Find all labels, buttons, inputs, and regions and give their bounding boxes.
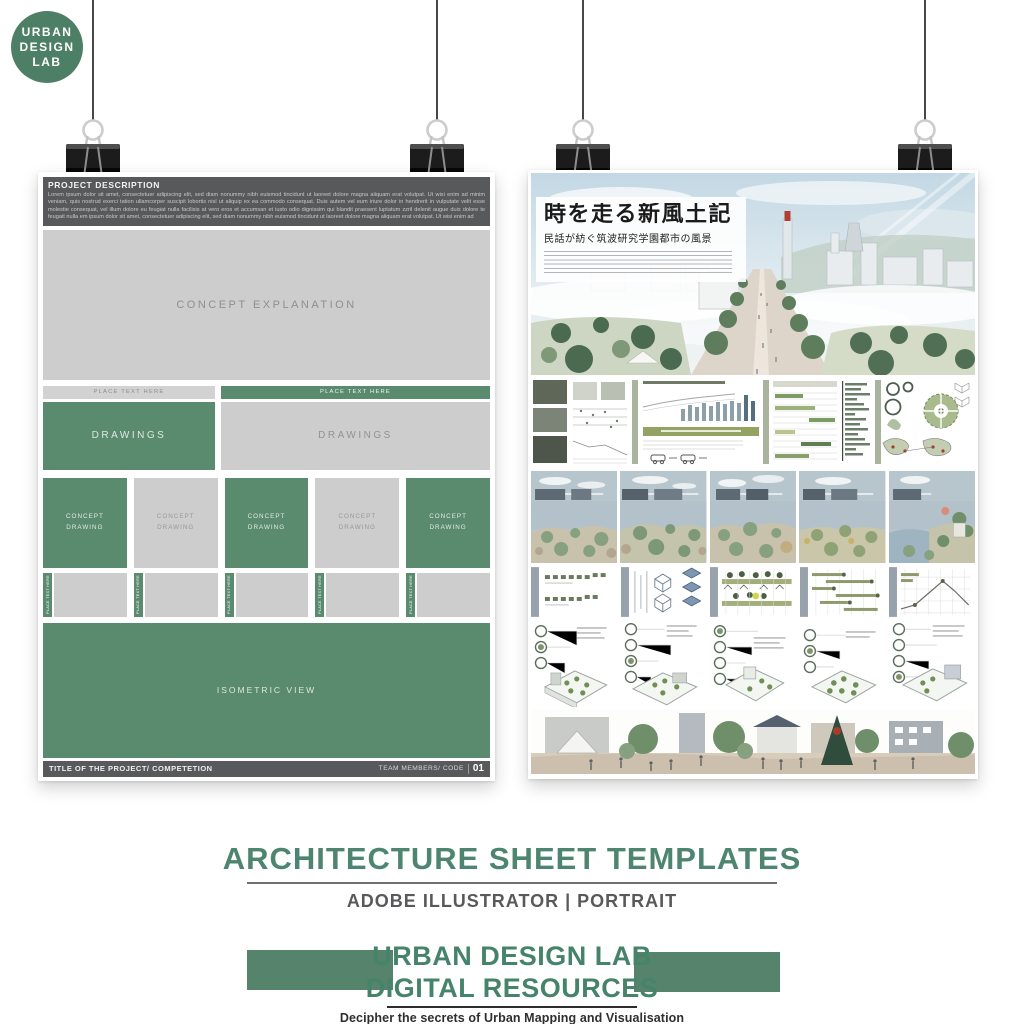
axon-cluster (889, 621, 975, 707)
hanging-string (92, 0, 94, 121)
logo-line-2: DESIGN (19, 40, 74, 55)
concept-explanation-box: CONCEPT EXPLANATION (43, 230, 490, 380)
strip-image-placeholder (326, 573, 399, 617)
place-text-strip: PLACE TEXT HERE (315, 573, 324, 617)
place-text-strips-row: PLACE TEXT HERE PLACE TEXT HERE PLACE TE… (43, 573, 490, 617)
example-poster: 時を走る新風土記 民話が紡ぐ筑波研究学園都市の風景 (528, 170, 978, 779)
analysis-diagrams-band (531, 377, 975, 469)
timeline-panel (710, 565, 796, 619)
landscape-panel (889, 471, 975, 563)
place-text-bar-green: PLACE TEXT HERE (221, 386, 490, 399)
concept-explanation-label: CONCEPT EXPLANATION (176, 299, 356, 311)
axon-cluster (621, 621, 707, 707)
axonometric-diagrams-row (531, 621, 975, 707)
brand-line-2: DIGITAL RESOURCES (247, 973, 777, 1005)
isometric-view-box: ISOMETRIC VIEW (43, 623, 490, 758)
concept-drawing-box: CONCEPT DRAWING (225, 478, 309, 568)
poster-title-block: 時を走る新風土記 民話が紡ぐ筑波研究学園都市の風景 (536, 197, 746, 282)
place-text-strip: PLACE TEXT HERE (406, 573, 415, 617)
axon-cluster (531, 621, 617, 707)
hanging-string (924, 0, 926, 121)
strip-unit: PLACE TEXT HERE (225, 573, 309, 617)
project-description-body: Lorem ipsum dolor sit amet, consectetuer… (48, 192, 485, 222)
binder-clip-icon (61, 117, 125, 179)
strip-unit: PLACE TEXT HERE (43, 573, 127, 617)
main-heading: ARCHITECTURE SHEET TEMPLATES (0, 841, 1024, 877)
drawings-box-gray: DRAWINGS (221, 402, 490, 470)
concept-drawing-box: CONCEPT DRAWING (315, 478, 399, 568)
footer-separator (468, 764, 469, 774)
axon-cluster (710, 621, 796, 707)
concept-drawing-box: CONCEPT DRAWING (134, 478, 218, 568)
footer-project-title: TITLE OF THE PROJECT/ COMPETETION (49, 764, 213, 773)
strip-image-placeholder (236, 573, 309, 617)
footer-sheet-number: 01 (473, 763, 484, 774)
timeline-panel (889, 565, 975, 619)
drawings-box-green: DRAWINGS (43, 402, 215, 470)
strip-unit: PLACE TEXT HERE (134, 573, 218, 617)
logo-line-1: URBAN (22, 25, 73, 40)
concept-drawing-row: CONCEPT DRAWING CONCEPT DRAWING CONCEPT … (43, 478, 490, 568)
caption-block: ARCHITECTURE SHEET TEMPLATES ADOBE ILLUS… (0, 841, 1024, 912)
landscape-panel (710, 471, 796, 563)
sub-heading: ADOBE ILLUSTRATOR | PORTRAIT (0, 891, 1024, 912)
binder-clip-icon (405, 117, 469, 179)
drawings-row: DRAWINGS DRAWINGS (43, 402, 490, 470)
concept-drawing-box: CONCEPT DRAWING (406, 478, 490, 568)
isometric-view-label: ISOMETRIC VIEW (217, 685, 316, 695)
landscape-panel (531, 471, 617, 563)
place-text-strip: PLACE TEXT HERE (134, 573, 143, 617)
strip-unit: PLACE TEXT HERE (315, 573, 399, 617)
hero-illustration: 時を走る新風土記 民話が紡ぐ筑波研究学園都市の風景 (531, 173, 975, 375)
landscape-panels-row (531, 471, 975, 563)
footer-team-label: TEAM MEMBERS/ CODE (379, 765, 464, 772)
timeline-panel (621, 565, 707, 619)
landscape-panel (799, 471, 885, 563)
project-description-header: PROJECT DESCRIPTION Lorem ipsum dolor si… (43, 177, 490, 226)
place-text-strip: PLACE TEXT HERE (225, 573, 234, 617)
poster-title: 時を走る新風土記 (544, 203, 738, 226)
brand-block: URBAN DESIGN LAB DIGITAL RESOURCES Decip… (247, 941, 777, 1024)
timeline-panel (531, 565, 617, 619)
intro-paragraph-placeholder (544, 251, 732, 275)
template-footer: TITLE OF THE PROJECT/ COMPETETION TEAM M… (43, 761, 490, 777)
urban-design-lab-logo: URBAN DESIGN LAB (11, 11, 83, 83)
place-text-strip: PLACE TEXT HERE (43, 573, 52, 617)
strip-image-placeholder (145, 573, 218, 617)
strip-image-placeholder (417, 573, 490, 617)
brand-tagline: Decipher the secrets of Urban Mapping an… (247, 1011, 777, 1024)
axon-cluster (800, 621, 886, 707)
template-poster: PROJECT DESCRIPTION Lorem ipsum dolor si… (38, 172, 495, 781)
heading-divider (247, 882, 777, 884)
street-illustration (531, 709, 975, 774)
place-text-bars-row: PLACE TEXT HERE PLACE TEXT HERE (43, 386, 490, 399)
strip-image-placeholder (54, 573, 127, 617)
strip-unit: PLACE TEXT HERE (406, 573, 490, 617)
timeline-diagrams-row (531, 565, 975, 619)
footer-right: TEAM MEMBERS/ CODE 01 (379, 763, 484, 774)
concept-drawing-box: CONCEPT DRAWING (43, 478, 127, 568)
project-description-title: PROJECT DESCRIPTION (48, 180, 485, 190)
page: URBAN DESIGN LAB PROJECT DE (0, 0, 1024, 1024)
hanging-string (582, 0, 584, 121)
logo-line-3: LAB (32, 55, 61, 70)
poster-subtitle: 民話が紡ぐ筑波研究学園都市の風景 (544, 230, 738, 245)
hanging-string (436, 0, 438, 121)
place-text-bar-gray: PLACE TEXT HERE (43, 386, 215, 399)
timeline-panel (800, 565, 886, 619)
landscape-panel (620, 471, 706, 563)
brand-line-1: URBAN DESIGN LAB (247, 941, 777, 973)
brand-divider (387, 1006, 637, 1008)
